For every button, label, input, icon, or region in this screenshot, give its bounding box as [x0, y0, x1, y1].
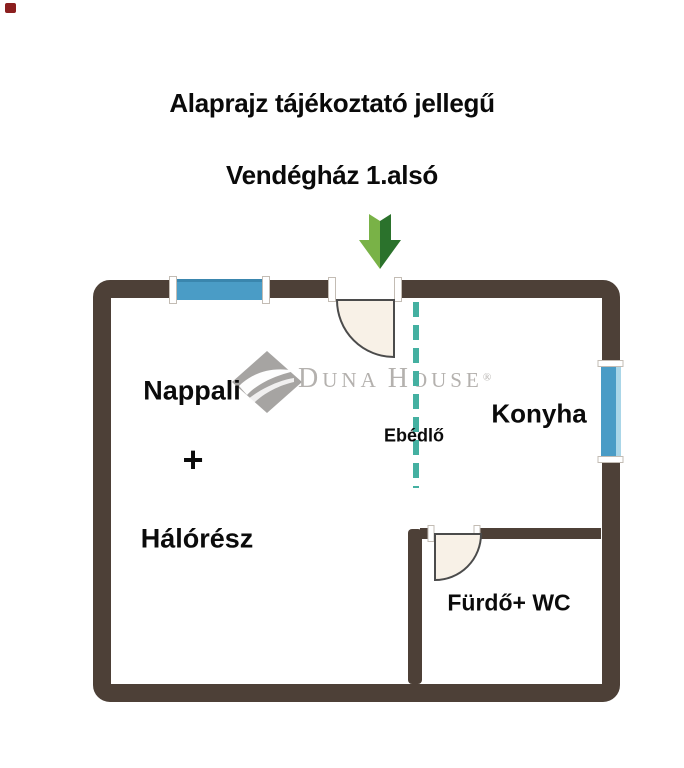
- window-top: [176, 279, 263, 300]
- bathroom-jamb-left: [428, 526, 434, 542]
- entrance-jamb-right: [395, 278, 402, 302]
- bathroom-wall-vertical: [408, 529, 422, 684]
- room-label-dining: Ebédlő: [384, 426, 444, 447]
- bathroom-wall-horizontal: [476, 528, 601, 539]
- room-label-bathroom: Fürdő+ WC: [447, 590, 570, 617]
- outer-wall: [102, 289, 611, 693]
- window-right-frame: [616, 366, 621, 457]
- floor-plan-drawing: [0, 0, 684, 768]
- floor-plan-page: Alaprajz tájékoztató jellegű Vendégház 1…: [0, 0, 684, 768]
- window-right-cap-top: [598, 361, 623, 367]
- room-label-kitchen: Konyha: [491, 399, 586, 430]
- bathroom-door-swing: [435, 534, 481, 580]
- window-right-cap-bottom: [598, 457, 623, 463]
- room-label-sleeping: Hálórész: [141, 524, 254, 555]
- entrance-jamb-left: [329, 278, 336, 302]
- entrance-door-swing: [337, 300, 394, 357]
- window-top-frame: [176, 279, 263, 282]
- plus-sign: +: [182, 439, 203, 481]
- window-top-cap-left: [170, 277, 177, 304]
- entrance-opening: [334, 277, 396, 302]
- room-label-living: Nappali: [143, 376, 241, 407]
- window-top-cap-right: [263, 277, 270, 304]
